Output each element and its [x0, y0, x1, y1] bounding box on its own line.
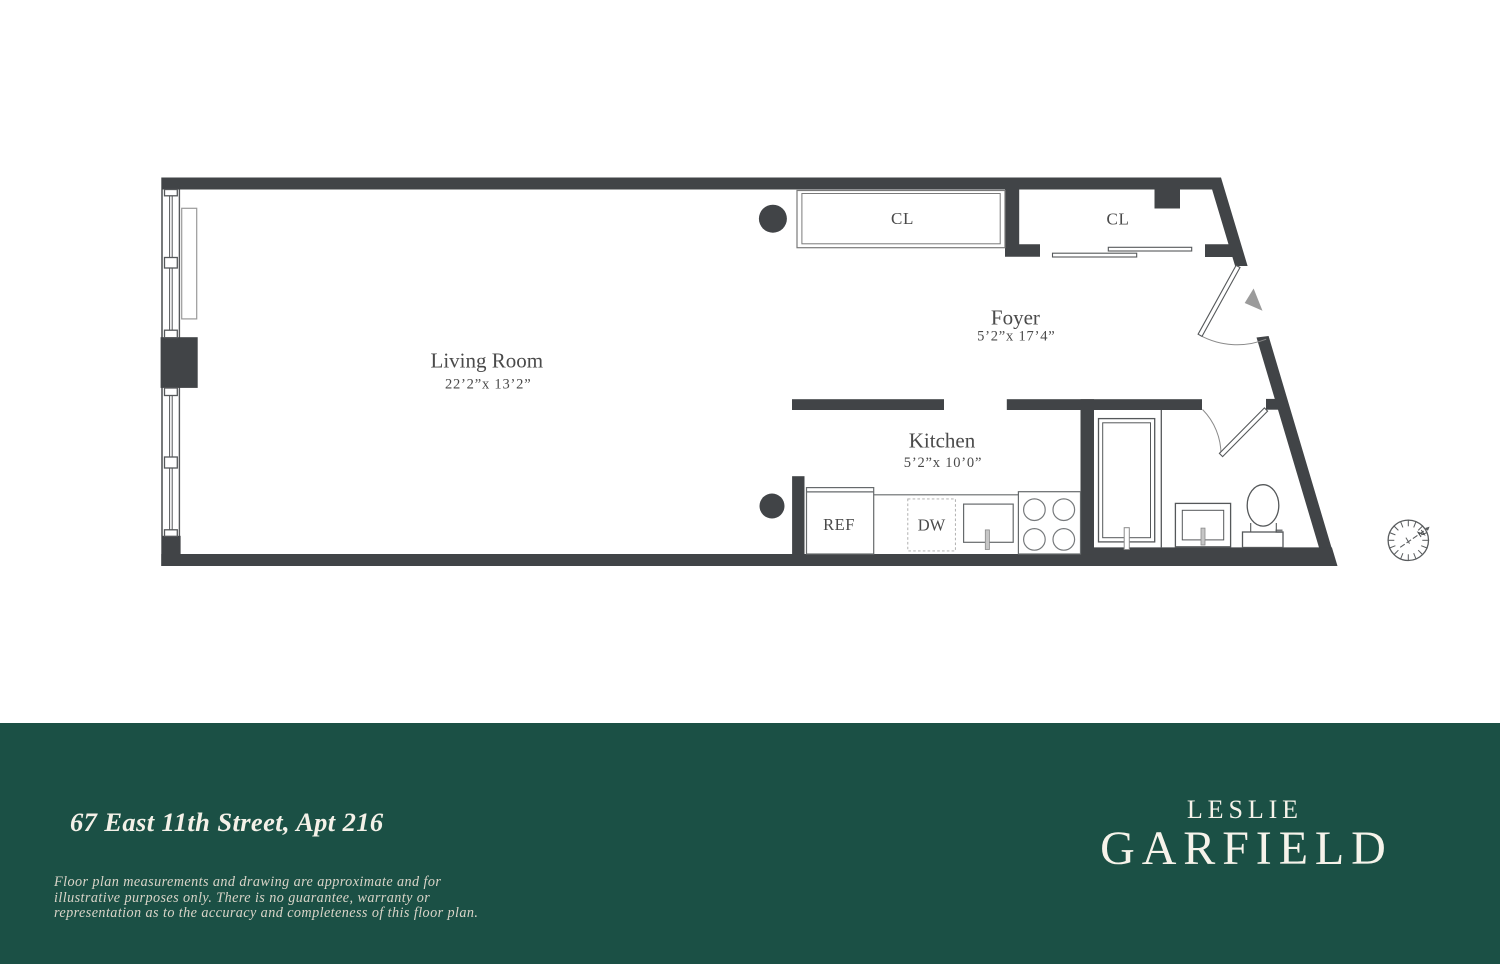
svg-text:Foyer: Foyer [991, 306, 1040, 330]
svg-text:DW: DW [918, 516, 946, 535]
svg-text:REF: REF [823, 515, 855, 534]
svg-text:22’2”x 13’2”: 22’2”x 13’2” [445, 376, 532, 392]
svg-text:CL: CL [891, 209, 914, 228]
svg-text:Living Room: Living Room [431, 349, 544, 373]
svg-text:Kitchen: Kitchen [909, 429, 976, 453]
svg-text:5’2”x 10’0”: 5’2”x 10’0” [904, 455, 982, 471]
svg-text:5’2”x 17’4”: 5’2”x 17’4” [977, 329, 1055, 345]
svg-text:CL: CL [1107, 209, 1130, 228]
